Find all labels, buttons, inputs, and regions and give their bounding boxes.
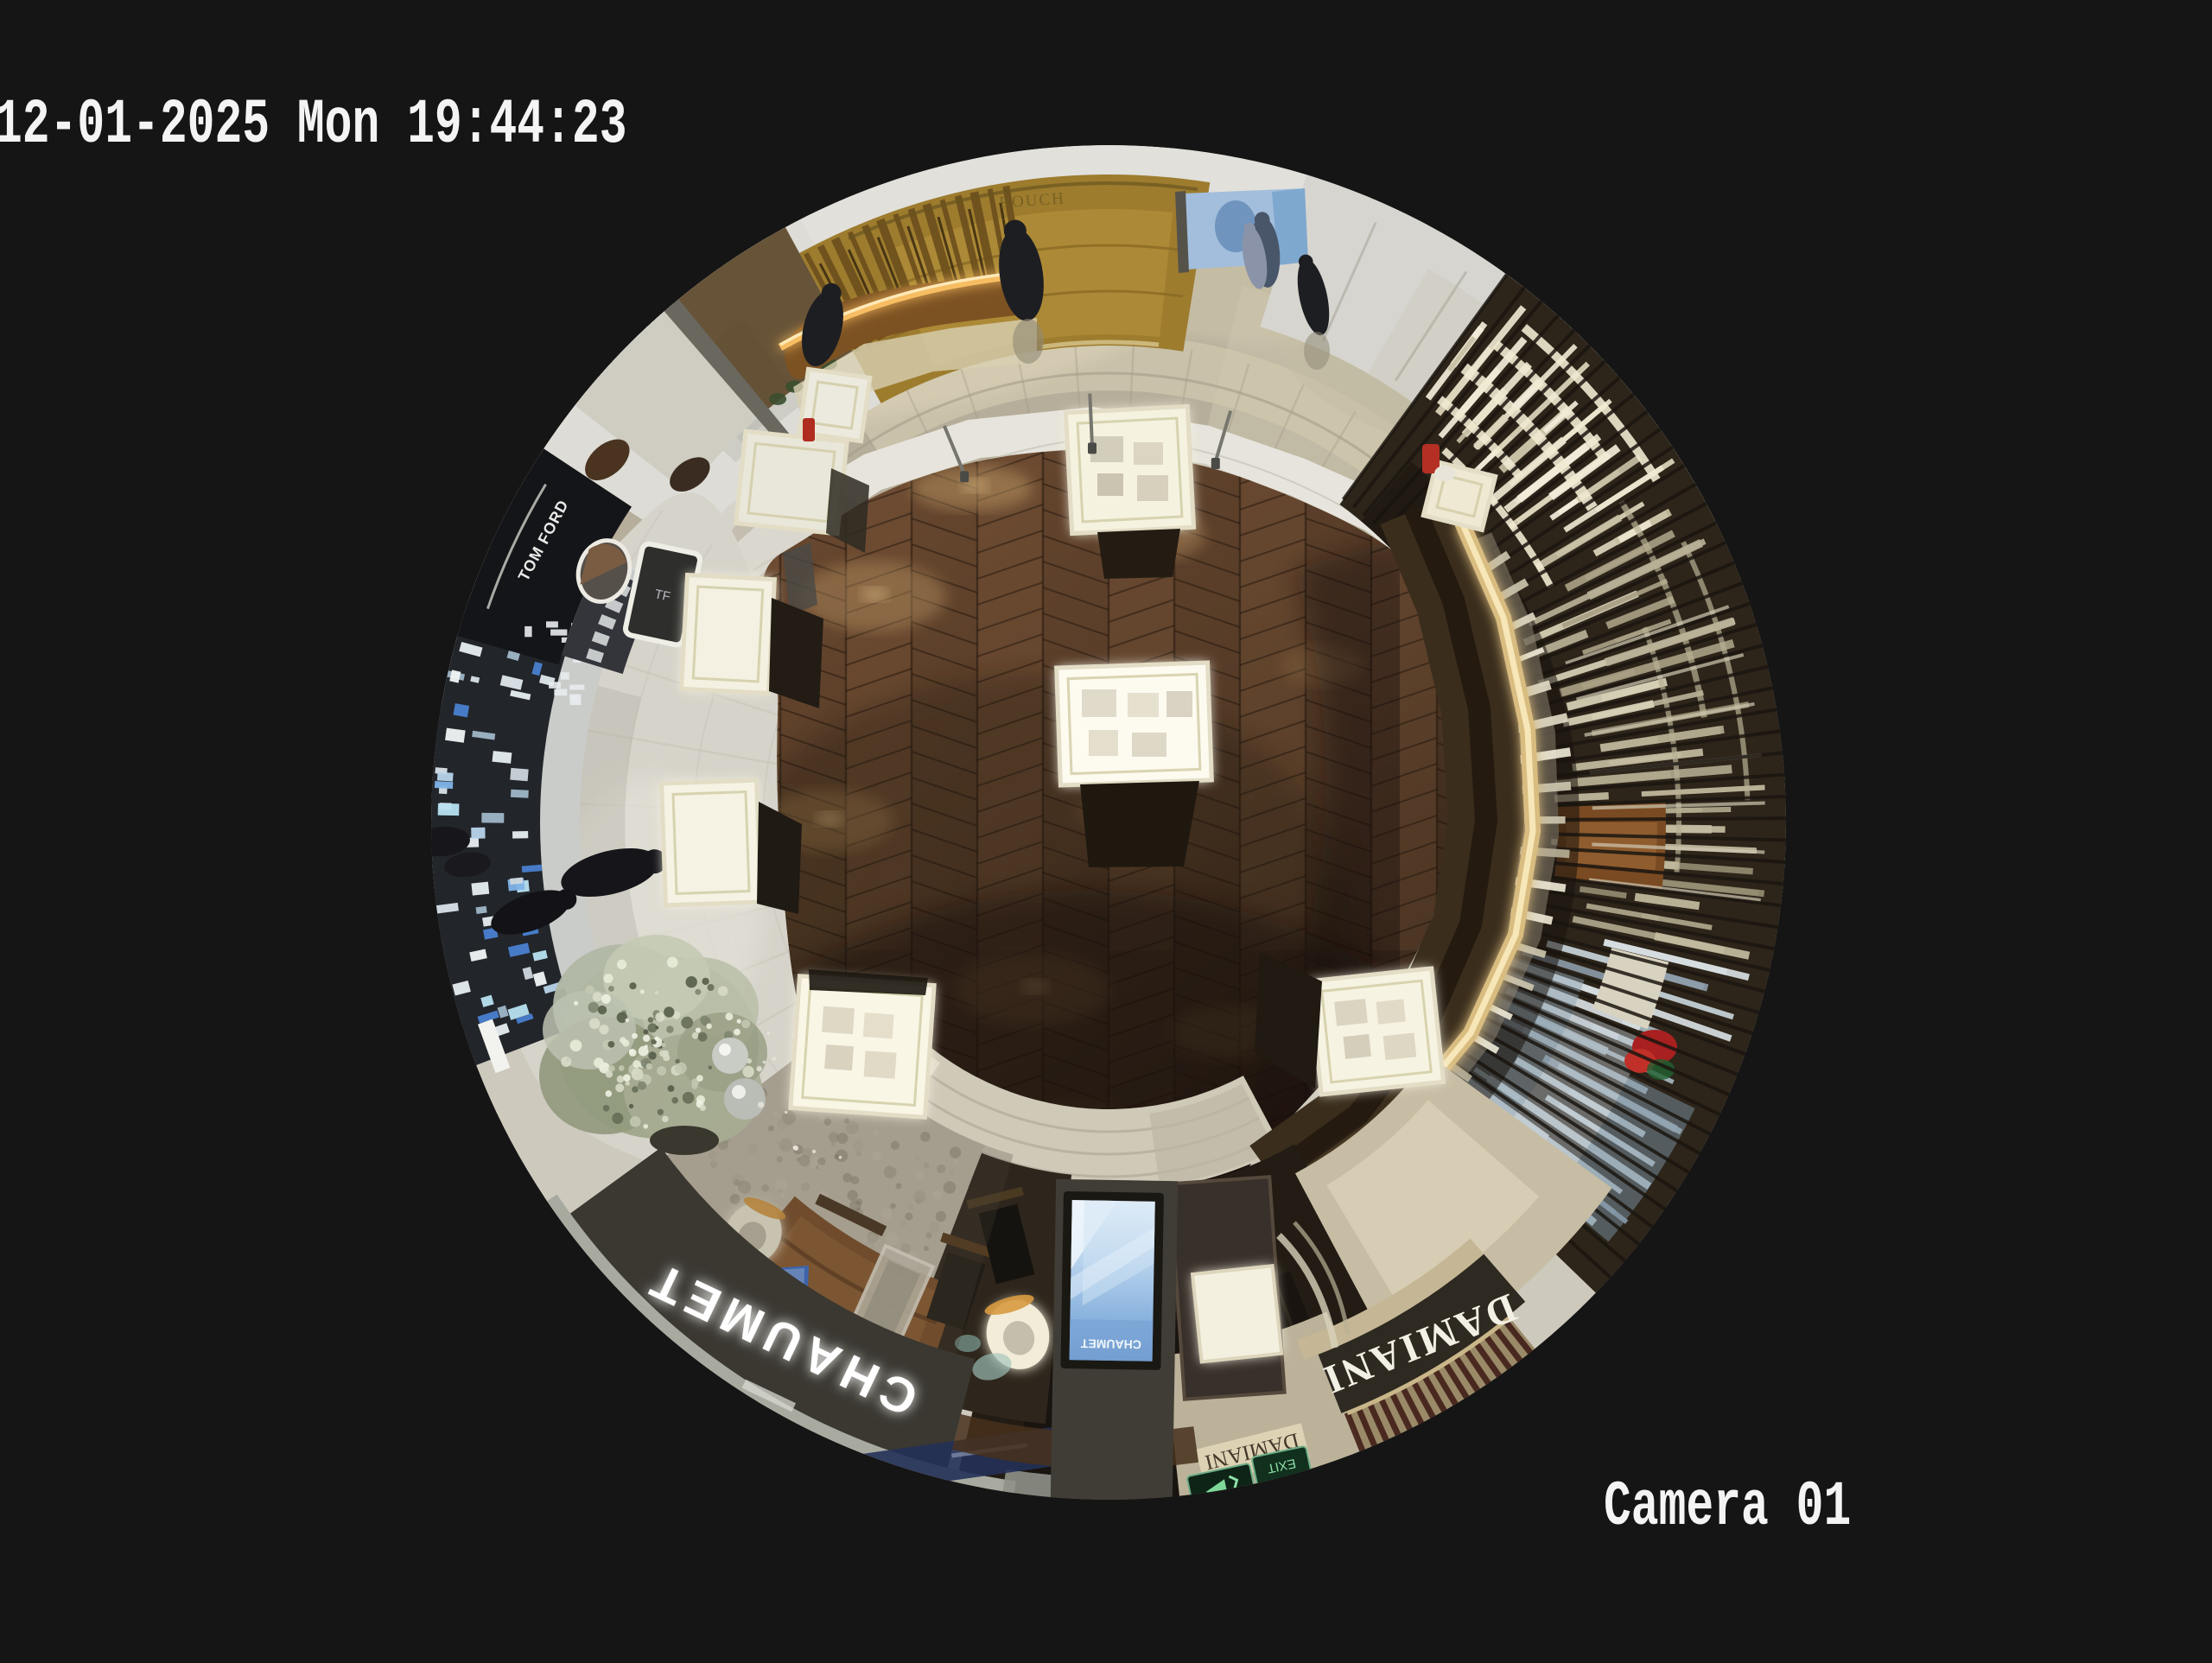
svg-text:CHAUMET: CHAUMET [1080, 1336, 1141, 1351]
